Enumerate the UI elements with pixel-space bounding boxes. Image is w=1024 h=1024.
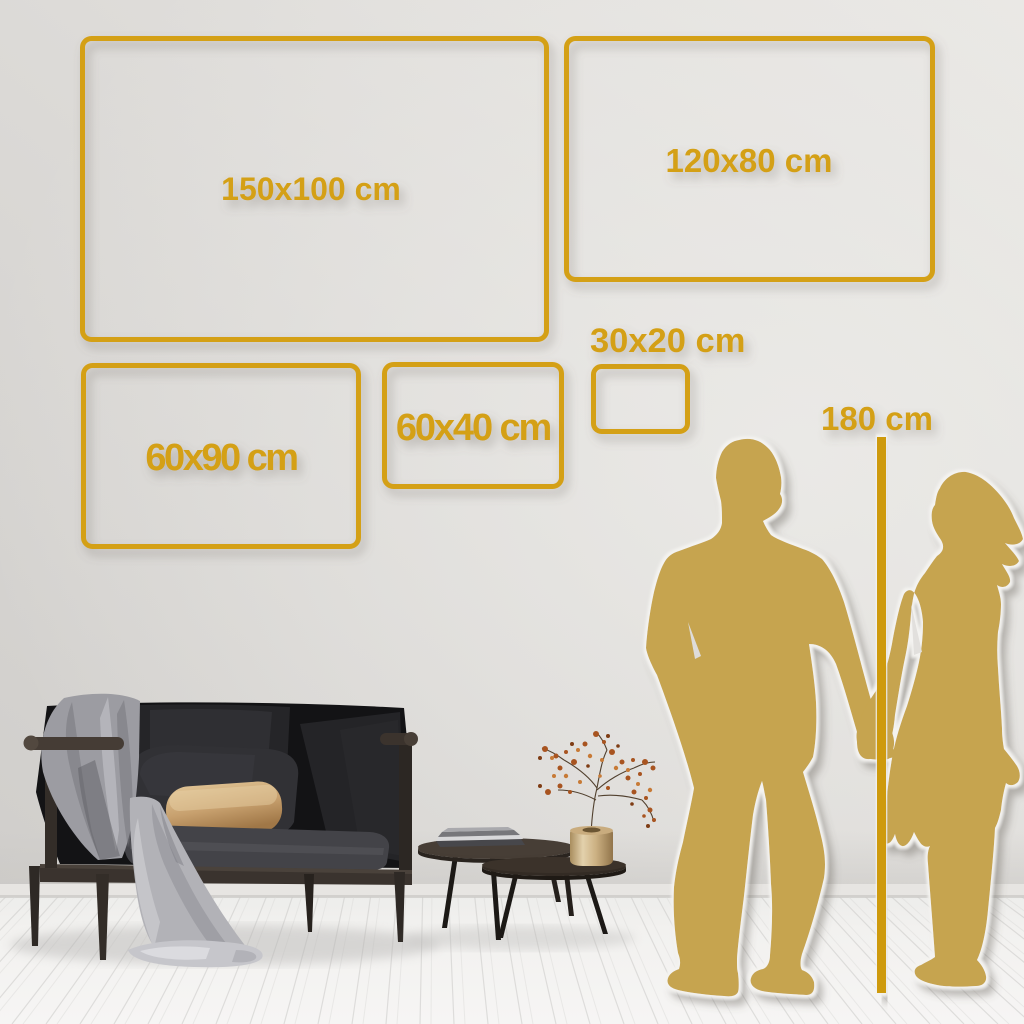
svg-text:30x20 cm: 30x20 cm bbox=[590, 322, 745, 360]
svg-text:150x100 cm: 150x100 cm bbox=[221, 171, 401, 207]
svg-text:60x40 cm: 60x40 cm bbox=[396, 407, 551, 449]
svg-text:120x80 cm: 120x80 cm bbox=[666, 142, 833, 179]
svg-text:60x90 cm: 60x90 cm bbox=[145, 437, 297, 479]
svg-text:180 cm: 180 cm bbox=[821, 400, 933, 437]
